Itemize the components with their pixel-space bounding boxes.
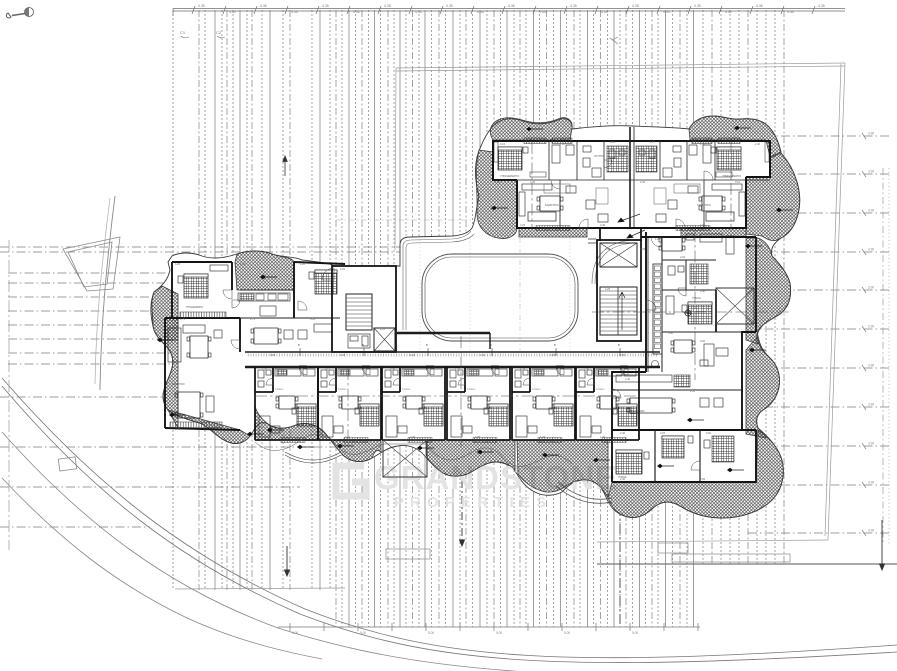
svg-text:3.10: 3.10	[500, 142, 506, 146]
svg-text:0.90: 0.90	[390, 367, 396, 371]
svg-text:4.35: 4.35	[353, 10, 360, 14]
svg-text:STUDIO: STUDIO	[596, 389, 605, 391]
svg-text:STUDIO: STUDIO	[532, 389, 541, 391]
svg-text:3.90: 3.90	[868, 209, 874, 213]
svg-text:4.35: 4.35	[756, 4, 763, 8]
svg-text:2.85: 2.85	[700, 477, 706, 481]
svg-text:4.25: 4.25	[520, 223, 526, 227]
svg-text:ΚΑΘΙΣΤΙΚΟ: ΚΑΘΙΣΤΙΚΟ	[545, 203, 559, 207]
svg-text:1.20: 1.20	[690, 389, 696, 393]
svg-text:3.10: 3.10	[345, 435, 351, 439]
svg-text:2.40: 2.40	[640, 180, 646, 184]
svg-text:2.40: 2.40	[755, 142, 761, 146]
svg-text:1.20: 1.20	[655, 237, 661, 241]
svg-text:4.35: 4.35	[601, 10, 608, 14]
svg-text:ΚΑΘΙΣΤΙΚΟ: ΚΑΘΙΣΤΙΚΟ	[697, 203, 711, 207]
svg-text:1.20: 1.20	[600, 435, 606, 439]
svg-text:STUDIO: STUDIO	[402, 389, 411, 391]
svg-text:2.40: 2.40	[680, 255, 686, 259]
svg-text:C2: C2	[216, 30, 222, 35]
svg-text:4.25: 4.25	[660, 431, 666, 435]
svg-text:4.35: 4.35	[508, 4, 515, 8]
svg-text:3.90: 3.90	[868, 325, 874, 329]
svg-text:PROPERTIES: PROPERTIES	[394, 495, 552, 511]
svg-text:0.90: 0.90	[706, 431, 712, 435]
svg-text:C1: C1	[180, 30, 186, 35]
svg-text:2.40: 2.40	[625, 377, 631, 381]
svg-text:0.90: 0.90	[610, 140, 616, 144]
svg-text:4.35: 4.35	[632, 4, 639, 8]
svg-text:3.90: 3.90	[868, 132, 874, 136]
svg-text:4.35: 4.35	[539, 10, 546, 14]
svg-text:4.35: 4.35	[570, 4, 577, 8]
svg-text:2.40: 2.40	[175, 427, 181, 431]
svg-text:3.90: 3.90	[868, 170, 874, 174]
svg-text:2.40: 2.40	[600, 223, 606, 227]
svg-text:4.35: 4.35	[477, 10, 484, 14]
svg-text:5.00: 5.00	[360, 631, 366, 635]
svg-text:2.40: 2.40	[700, 142, 706, 146]
svg-text:2.40: 2.40	[620, 477, 626, 481]
svg-text:2.40: 2.40	[480, 353, 486, 357]
svg-text:ΚΑΘΙΣΤΙΚΟ: ΚΑΘΙΣΤΙΚΟ	[172, 383, 185, 386]
svg-text:4.35: 4.35	[694, 4, 701, 8]
svg-text:4.25: 4.25	[280, 435, 286, 439]
svg-text:2.85: 2.85	[495, 180, 501, 184]
svg-text:4.25: 4.25	[175, 262, 181, 266]
svg-text:4.35: 4.35	[663, 10, 670, 14]
svg-text:5.00: 5.00	[564, 631, 570, 635]
svg-text:STUDIO: STUDIO	[338, 389, 347, 391]
svg-text:0.90: 0.90	[700, 339, 706, 343]
svg-text:1.75: 1.75	[540, 435, 546, 439]
svg-text:1.20: 1.20	[300, 262, 306, 266]
svg-text:3.10: 3.10	[325, 367, 331, 371]
svg-text:1.20: 1.20	[262, 367, 268, 371]
svg-text:2.85: 2.85	[475, 435, 481, 439]
svg-text:4.25: 4.25	[605, 287, 611, 291]
svg-text:4.35: 4.35	[229, 10, 236, 14]
svg-text:3.90: 3.90	[868, 442, 874, 446]
svg-text:STUDIO: STUDIO	[275, 389, 284, 391]
svg-text:4.25: 4.25	[640, 247, 646, 251]
svg-text:5.00: 5.00	[496, 631, 502, 635]
svg-text:0.90: 0.90	[668, 331, 674, 335]
svg-text:4.25: 4.25	[410, 435, 416, 439]
svg-text:4.35: 4.35	[198, 4, 205, 8]
svg-text:4.35: 4.35	[725, 10, 732, 14]
svg-text:2.40: 2.40	[240, 262, 246, 266]
svg-text:4.35: 4.35	[260, 4, 267, 8]
svg-text:2.40: 2.40	[584, 367, 590, 371]
svg-text:4.25: 4.25	[700, 223, 706, 227]
svg-text:3.90: 3.90	[868, 481, 874, 485]
svg-text:2.40: 2.40	[605, 247, 611, 251]
svg-text:1.20: 1.20	[455, 367, 461, 371]
svg-text:1.20: 1.20	[410, 353, 416, 357]
svg-text:5.00: 5.00	[632, 631, 638, 635]
svg-text:ΥΠΝΟΔΩΜΑΤΙΟ: ΥΠΝΟΔΩΜΑΤΙΟ	[500, 174, 519, 178]
svg-text:2.40: 2.40	[700, 289, 706, 293]
svg-text:4.35: 4.35	[384, 4, 391, 8]
svg-text:5.00: 5.00	[292, 631, 298, 635]
svg-text:3.10: 3.10	[735, 180, 741, 184]
svg-text:4.35: 4.35	[415, 10, 422, 14]
svg-text:4.25: 4.25	[530, 180, 536, 184]
svg-text:0.90: 0.90	[270, 353, 276, 357]
svg-text:3.90: 3.90	[868, 248, 874, 252]
svg-text:3.90: 3.90	[868, 364, 874, 368]
svg-text:1.75: 1.75	[650, 140, 656, 144]
svg-text:3.90: 3.90	[868, 529, 874, 533]
svg-text:1.75: 1.75	[180, 317, 186, 321]
svg-text:3.90: 3.90	[868, 403, 874, 407]
svg-text:5.00: 5.00	[428, 631, 434, 635]
svg-text:1.20: 1.20	[560, 142, 566, 146]
svg-text:4.25: 4.25	[340, 267, 346, 271]
svg-text:2.85: 2.85	[620, 353, 626, 357]
svg-text:ΥΠΝΟΔ.: ΥΠΝΟΔ.	[692, 297, 701, 300]
svg-text:STUDIO: STUDIO	[467, 389, 476, 391]
svg-text:4.35: 4.35	[322, 4, 329, 8]
svg-text:4.35: 4.35	[818, 4, 825, 8]
svg-text:3.90: 3.90	[868, 286, 874, 290]
svg-text:2.40: 2.40	[340, 353, 346, 357]
svg-text:4.25: 4.25	[310, 317, 316, 321]
svg-text:4.35: 4.35	[291, 10, 298, 14]
svg-text:ΥΠΝΟΔΩΜΑΤΙΟ: ΥΠΝΟΔΩΜΑΤΙΟ	[186, 306, 203, 309]
svg-text:4.25: 4.25	[520, 367, 526, 371]
svg-text:4.25: 4.25	[380, 327, 386, 331]
svg-text:4.35: 4.35	[787, 10, 794, 14]
svg-text:ΥΠΝΟΔΩΜΑΤΙΟ: ΥΠΝΟΔΩΜΑΤΙΟ	[722, 174, 741, 178]
svg-text:ΛΟΥΤΡΟ: ΛΟΥΤΡΟ	[594, 155, 604, 158]
svg-text:2.40: 2.40	[620, 431, 626, 435]
svg-text:1.75: 1.75	[250, 317, 256, 321]
svg-text:4.25: 4.25	[550, 353, 556, 357]
svg-text:4.35: 4.35	[446, 4, 453, 8]
